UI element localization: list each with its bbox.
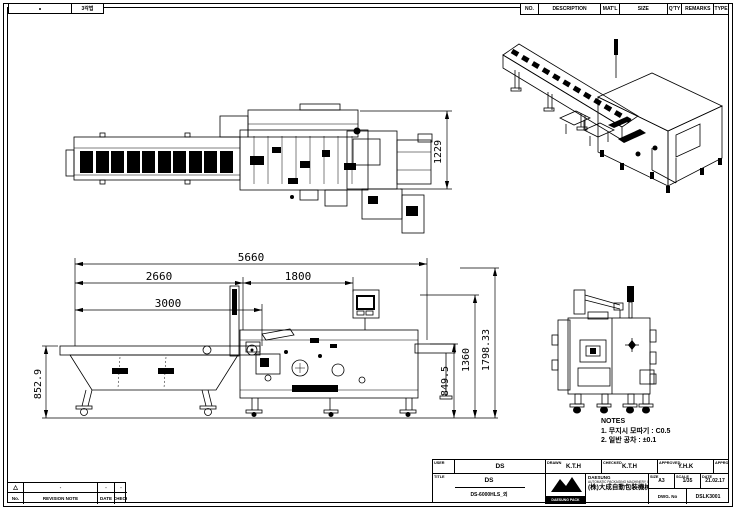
revision-date-value: - — [98, 483, 115, 493]
dim-overall-length: 5660 — [238, 251, 265, 264]
dwg-label-cell: DWG. No — [649, 489, 687, 504]
size-label: SIZE — [650, 475, 658, 479]
side-view-dimensions: 5660 2660 1800 3000 852.9 849 — [33, 251, 499, 418]
scale-cell: SCALE 1/35 — [675, 474, 701, 489]
revision-note-value: - — [24, 483, 98, 493]
title-block: USER DS TITLE DS DS-6000HLS_외 DRAWN K.T.… — [432, 459, 729, 503]
plan-belt-segments — [80, 151, 233, 173]
dim-body-height: 1360 — [461, 348, 472, 372]
svg-text:1229: 1229 — [433, 140, 444, 164]
side-view: 5660 2660 1800 3000 852.9 849 — [33, 251, 499, 418]
signature-label: APPROVED — [659, 461, 680, 465]
user-label-cell: USER — [433, 460, 455, 474]
dim-conveyor-length: 3000 — [155, 297, 182, 310]
signature-cell-drawn: DRAWN K.T.H — [546, 460, 602, 474]
end-view — [552, 286, 656, 414]
iso-view — [503, 39, 722, 193]
signature-cell-checked: CHECKED K.T.H — [602, 460, 658, 474]
dwg-value: DSLK3001 — [687, 489, 729, 504]
revision-col-no: No. — [8, 493, 24, 504]
dim-max-height: 1798.33 — [481, 329, 492, 371]
subtitle-value: DS-6000HLS_외 — [433, 491, 545, 498]
scale-label: SCALE — [676, 475, 689, 479]
drawing-sheet: 3각법 NO. DESCRIPTION MAT'L SIZE Q'TY REMA… — [0, 0, 736, 510]
signature-label: APPROVED — [715, 461, 729, 465]
revision-col-check: CHECK — [115, 493, 127, 504]
dim-wrapper-length: 1800 — [285, 270, 312, 283]
size-cell: SIZE A3 — [649, 474, 675, 489]
user-value: DS — [455, 460, 545, 473]
logo-cell: DAESUNG PACK — [546, 474, 586, 504]
notes-block: NOTES 1. 무지시 모따기 : C0.5 2. 일반 공차 : ±0.1 — [601, 417, 733, 446]
daesung-mountain-logo-icon — [546, 474, 586, 495]
dim-plan-height: 1229 — [360, 111, 452, 189]
revision-check-value: - — [115, 483, 127, 493]
signature-cell-extra: APPROVED — [714, 460, 729, 474]
company-cjk-name: (株)大成自動包裝機械 — [588, 484, 646, 492]
plan-view: 1229 — [66, 104, 452, 233]
signature-cell-approved: APPROVED Y.H.K — [658, 460, 714, 474]
dim-infeed-length: 2660 — [146, 270, 173, 283]
date-cell: DATE 21.02.17 — [701, 474, 729, 489]
user-value-cell: DS — [455, 460, 546, 474]
company-cell: DAESUNG AUTOMATIC PACKAGING MACHINERY CO… — [586, 474, 649, 504]
dim-discharge-height: 849.5 — [440, 366, 451, 396]
logo-text: DAESUNG PACK — [546, 496, 585, 504]
notes-title: NOTES — [601, 417, 733, 427]
dwg-value-cell: DSLK3001 — [687, 489, 729, 504]
revision-table: △ - - - No. REVISION NOTE DATE CHECK — [7, 482, 126, 503]
revision-col-note: REVISION NOTE — [24, 493, 98, 504]
revision-col-date: DATE — [98, 493, 115, 504]
date-label: DATE — [702, 475, 712, 479]
title-value: DS — [433, 477, 545, 484]
dim-infeed-height: 852.9 — [33, 369, 44, 399]
signature-label: DRAWN — [547, 461, 561, 465]
notes-line-2: 2. 일반 공차 : ±0.1 — [601, 436, 733, 446]
signature-label: CHECKED — [603, 461, 622, 465]
title-cell: TITLE DS DS-6000HLS_외 — [433, 474, 546, 504]
revision-triangle-icon: △ — [8, 483, 24, 493]
title-divider — [455, 487, 525, 488]
user-label: USER — [434, 461, 445, 465]
dwg-label: DWG. No — [649, 489, 686, 504]
notes-line-1: 1. 무지시 모따기 : C0.5 — [601, 427, 733, 437]
